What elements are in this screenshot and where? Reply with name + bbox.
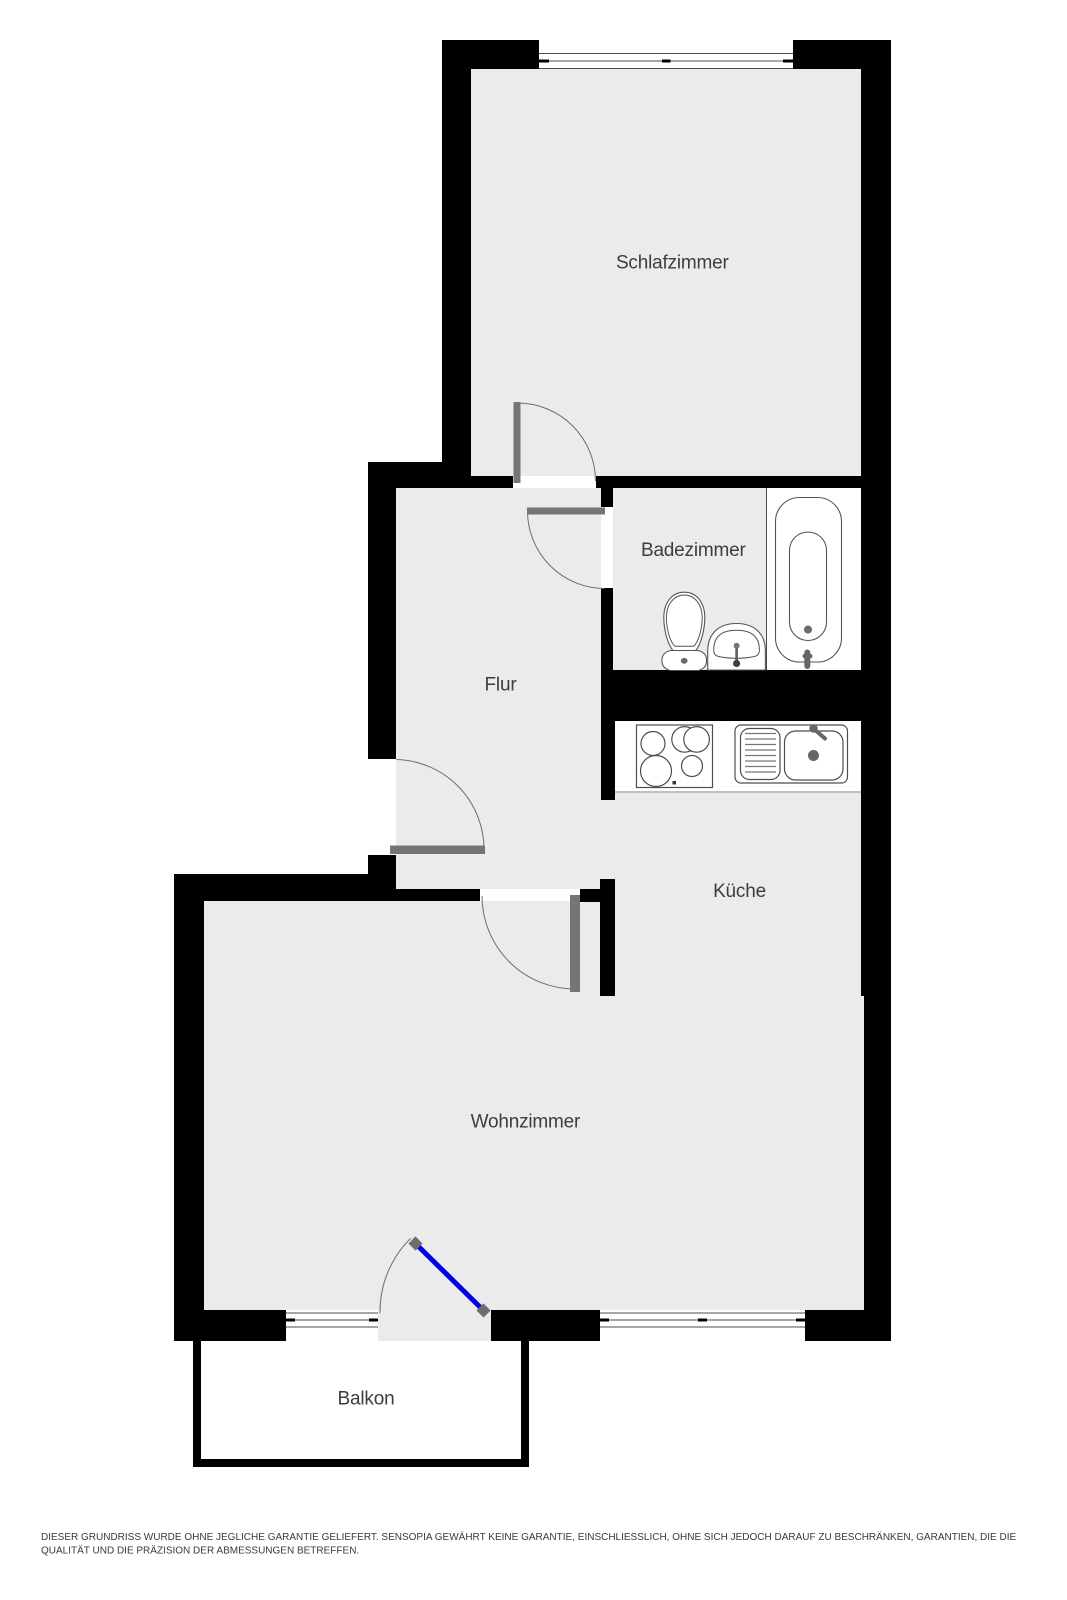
svg-text:Wohnzimmer: Wohnzimmer (471, 1112, 581, 1133)
svg-text:QUALITÄT UND DIE PRÄZISION DER: QUALITÄT UND DIE PRÄZISION DER ABMESSUNG… (41, 1545, 359, 1557)
svg-text:Küche: Küche (713, 881, 766, 902)
svg-text:Schlafzimmer: Schlafzimmer (616, 253, 730, 274)
svg-text:Badezimmer: Badezimmer (641, 540, 747, 561)
svg-text:Balkon: Balkon (338, 1389, 395, 1410)
svg-text:Flur: Flur (485, 675, 518, 696)
svg-text:DIESER GRUNDRISS WURDE OHNE JE: DIESER GRUNDRISS WURDE OHNE JEGLICHE GAR… (41, 1531, 1017, 1543)
